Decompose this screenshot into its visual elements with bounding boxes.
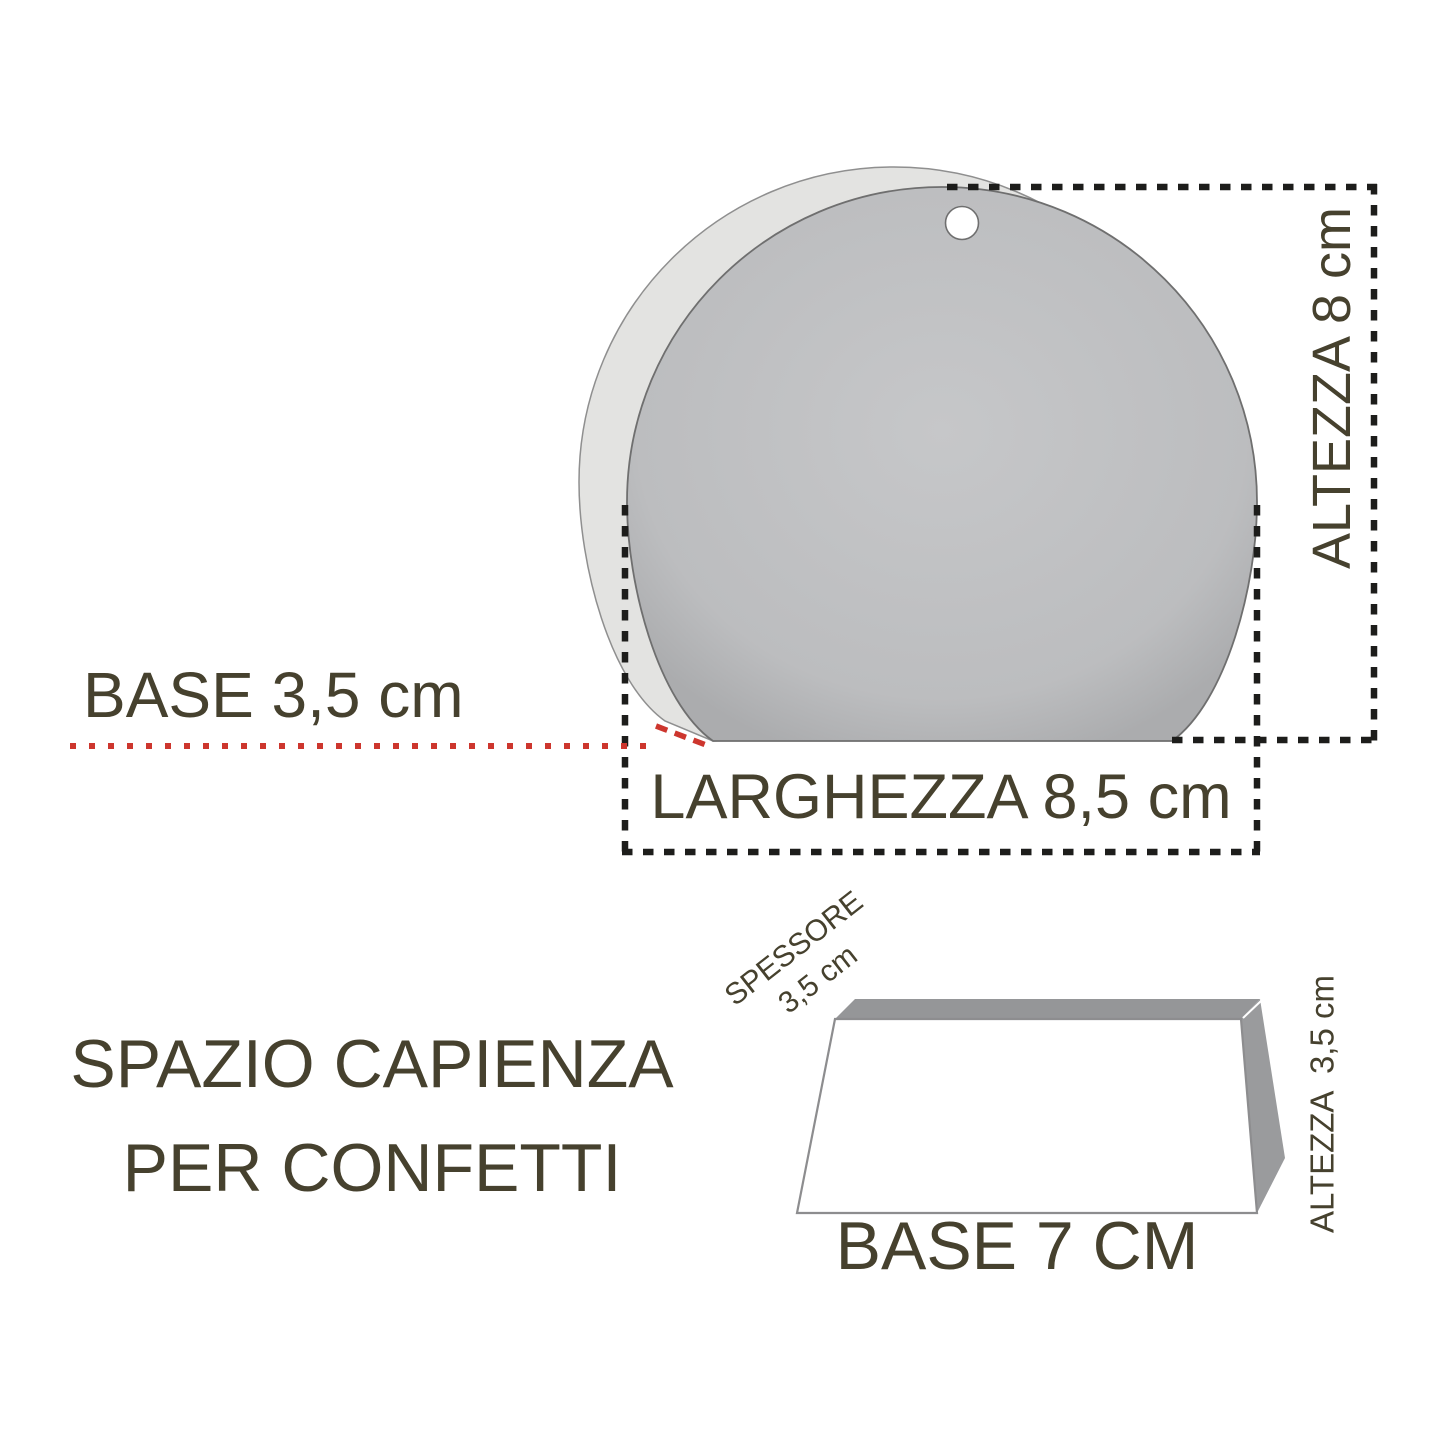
hanging-hole bbox=[946, 207, 979, 240]
confetti-tray bbox=[797, 999, 1285, 1213]
capacity-caption-line2: PER CONFETTI bbox=[70, 1134, 673, 1202]
tray-top-face bbox=[835, 999, 1260, 1019]
base-depth-label: BASE 3,5 cm bbox=[83, 663, 464, 727]
tray-height-label: ALTEZZA 3,5 cm bbox=[1306, 975, 1339, 1233]
width-label: LARGHEZZA 8,5 cm bbox=[650, 766, 1231, 829]
tray-base-label: BASE 7 CM bbox=[836, 1212, 1199, 1280]
capacity-caption: SPAZIO CAPIENZA PER CONFETTI bbox=[70, 1030, 673, 1202]
capacity-caption-line1: SPAZIO CAPIENZA bbox=[70, 1030, 673, 1098]
height-label: ALTEZZA 8 cm bbox=[1305, 207, 1359, 569]
dimension-diagram: BASE 3,5 cm LARGHEZZA 8,5 cm ALTEZZA 8 c… bbox=[0, 0, 1445, 1445]
tray-front-face bbox=[797, 1019, 1257, 1213]
